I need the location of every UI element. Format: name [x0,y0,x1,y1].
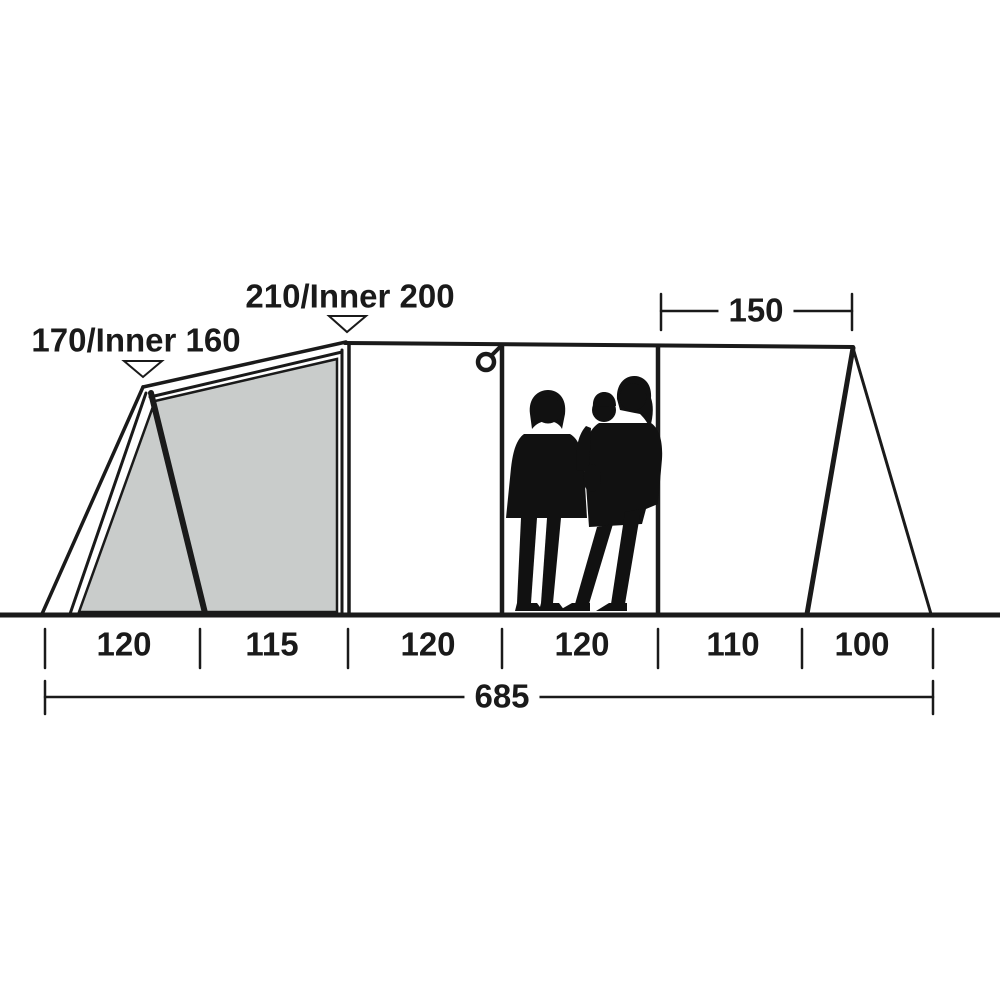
section-width-label-6: 100 [834,628,889,661]
section-width-label-4: 120 [554,628,609,661]
inner-tent-panel [79,359,337,612]
section-width-label-1: 120 [96,628,151,661]
hanging-ring-icon [478,346,501,370]
adult-left-silhouette [506,390,587,611]
section-width-label-2: 115 [245,628,298,661]
tent-dimension-diagram: 170/Inner 160 210/Inner 200 150 120 115 … [0,0,1000,1000]
top-width-label: 150 [718,294,793,327]
main-roofline [345,343,853,347]
tent-line-art [0,0,1000,1000]
people-silhouette [506,376,662,611]
total-width-label: 685 [464,680,539,713]
section-width-label-5: 110 [706,628,759,661]
main-height-pointer-icon [329,316,366,332]
front-height-pointer-icon [124,361,162,377]
rear-pole [807,348,853,614]
section-dimension-ticks [45,629,933,668]
main-height-label: 210/Inner 200 [245,280,454,313]
front-height-label: 170/Inner 160 [31,324,240,357]
section-width-label-3: 120 [400,628,455,661]
rear-guy-line [853,348,931,614]
